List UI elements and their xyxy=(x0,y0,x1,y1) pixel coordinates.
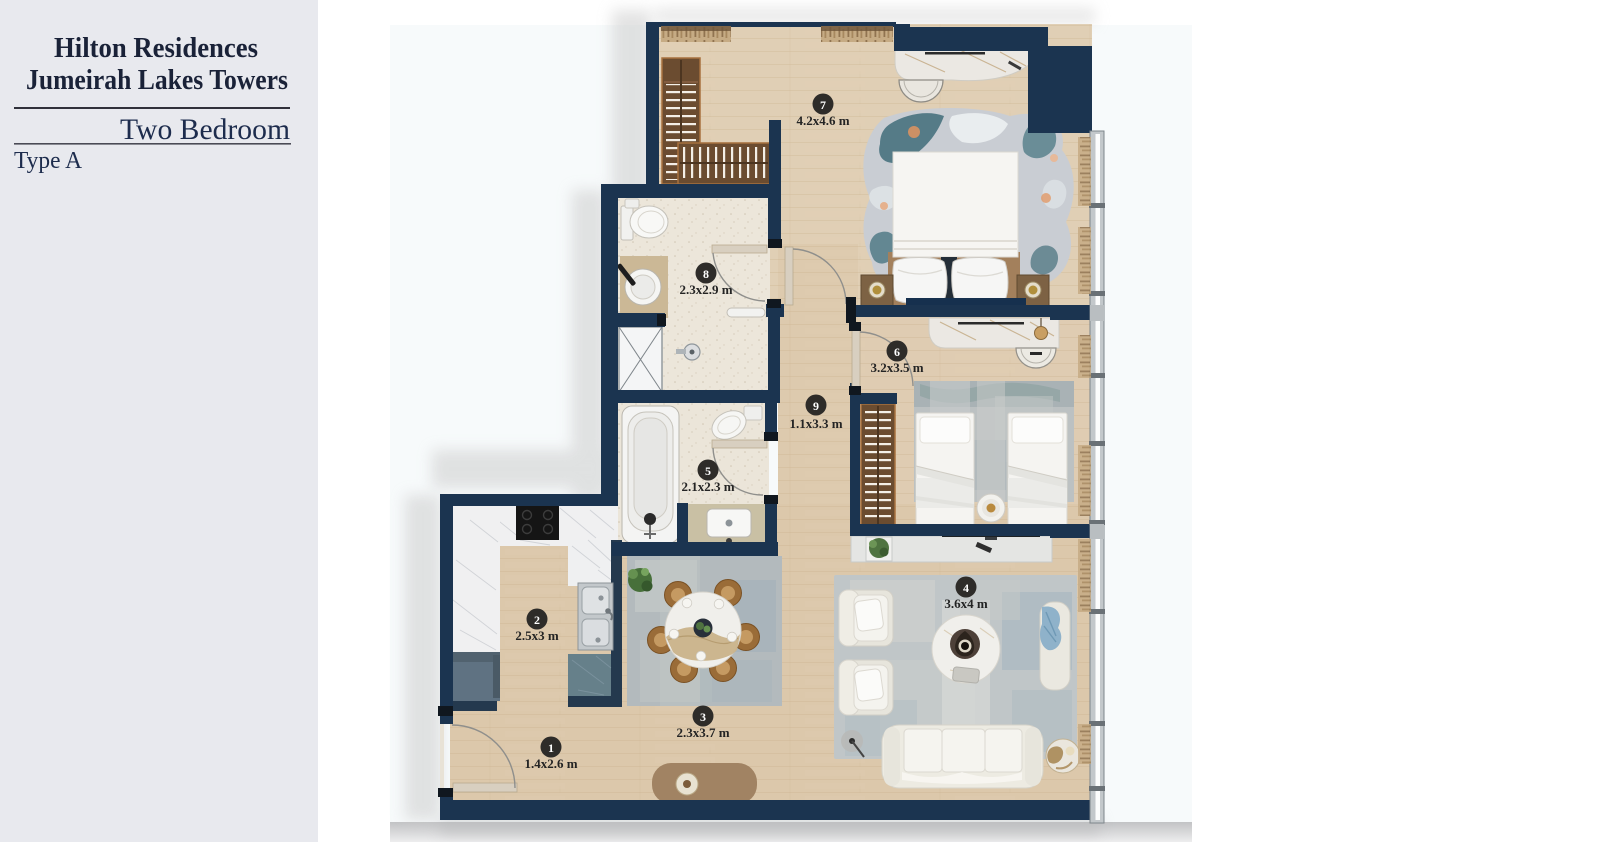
svg-text:3.2x3.5 m: 3.2x3.5 m xyxy=(870,360,923,375)
svg-text:9: 9 xyxy=(813,399,819,413)
svg-text:Hilton Residences: Hilton Residences xyxy=(54,32,258,64)
svg-text:8: 8 xyxy=(703,267,709,281)
svg-text:2.1x2.3 m: 2.1x2.3 m xyxy=(681,479,734,494)
svg-text:4: 4 xyxy=(963,581,969,595)
svg-text:3: 3 xyxy=(700,710,706,724)
svg-text:5: 5 xyxy=(705,464,711,478)
svg-text:2: 2 xyxy=(534,613,540,627)
svg-text:1.1x3.3 m: 1.1x3.3 m xyxy=(789,416,842,431)
svg-text:Type A: Type A xyxy=(14,148,83,174)
svg-text:Jumeirah Lakes Towers: Jumeirah Lakes Towers xyxy=(26,64,288,96)
svg-text:Two Bedroom: Two Bedroom xyxy=(120,113,290,146)
svg-text:7: 7 xyxy=(820,98,826,112)
svg-text:1.4x2.6 m: 1.4x2.6 m xyxy=(524,756,577,771)
svg-text:2.3x3.7 m: 2.3x3.7 m xyxy=(676,725,729,740)
svg-text:1: 1 xyxy=(548,741,554,755)
svg-text:4.2x4.6 m: 4.2x4.6 m xyxy=(796,113,849,128)
svg-text:3.6x4 m: 3.6x4 m xyxy=(944,596,988,611)
svg-text:2.3x2.9 m: 2.3x2.9 m xyxy=(679,282,732,297)
svg-text:2.5x3 m: 2.5x3 m xyxy=(515,628,559,643)
svg-text:6: 6 xyxy=(894,345,900,359)
